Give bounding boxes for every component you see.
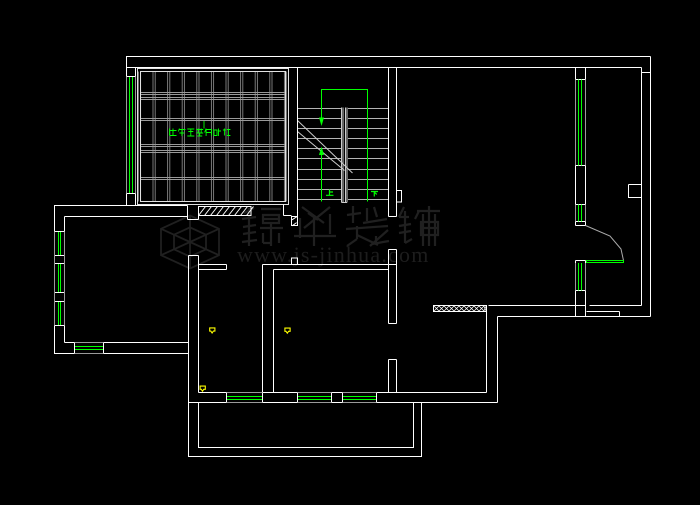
svg-text:www.js-jinhua.com: www.js-jinhua.com xyxy=(237,242,430,267)
